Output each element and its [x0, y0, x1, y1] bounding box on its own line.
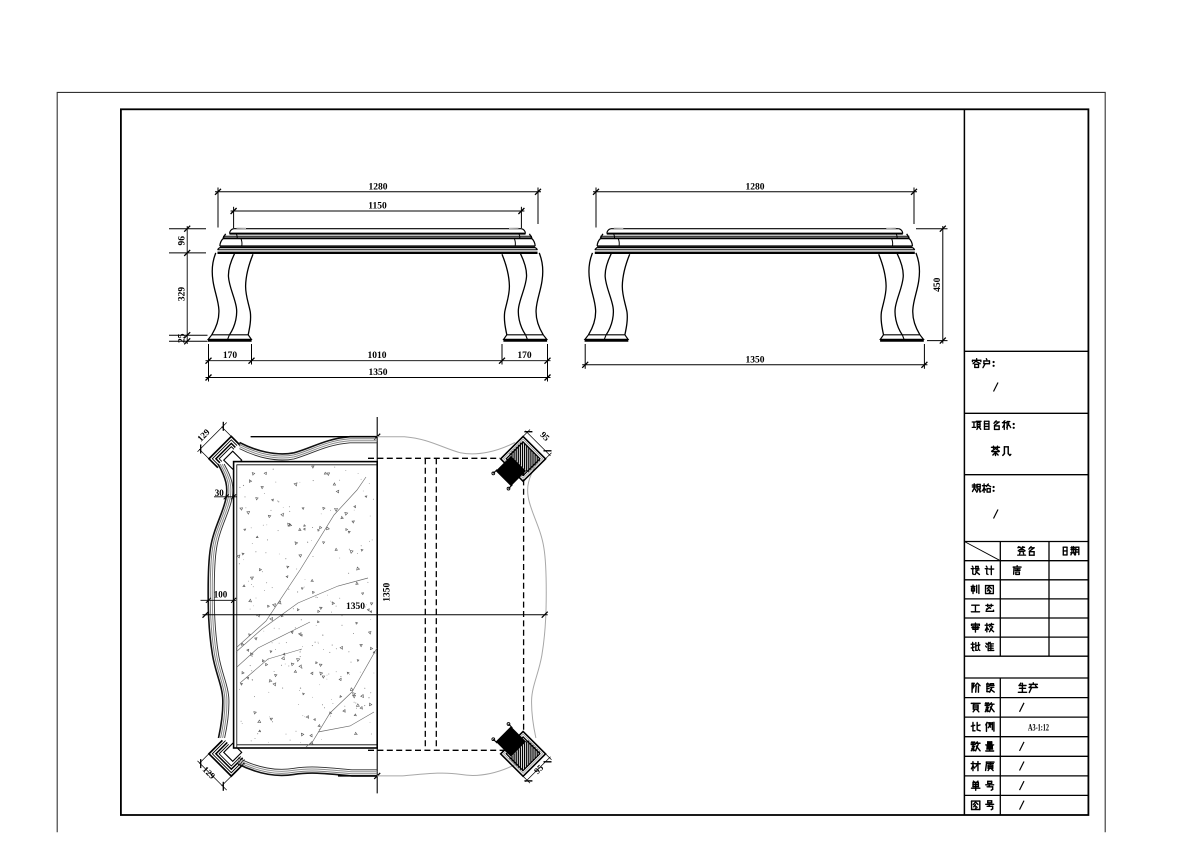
svg-text:450: 450 — [933, 277, 943, 292]
svg-text:30: 30 — [215, 488, 225, 498]
svg-text:25: 25 — [177, 333, 187, 343]
svg-text:1350: 1350 — [346, 602, 365, 612]
svg-text:100: 100 — [214, 589, 228, 599]
svg-text:1150: 1150 — [368, 202, 387, 212]
svg-text:170: 170 — [223, 351, 238, 361]
svg-text:1280: 1280 — [746, 182, 765, 192]
svg-text:170: 170 — [517, 351, 532, 361]
svg-text:1350: 1350 — [746, 355, 765, 365]
svg-text:1280: 1280 — [369, 182, 388, 192]
svg-text:A3-1:12: A3-1:12 — [1028, 723, 1049, 733]
svg-text:1350: 1350 — [369, 368, 388, 378]
svg-text:1350: 1350 — [382, 582, 392, 601]
svg-text:1010: 1010 — [368, 351, 387, 361]
svg-text:96: 96 — [177, 236, 187, 246]
svg-text:329: 329 — [177, 287, 187, 302]
